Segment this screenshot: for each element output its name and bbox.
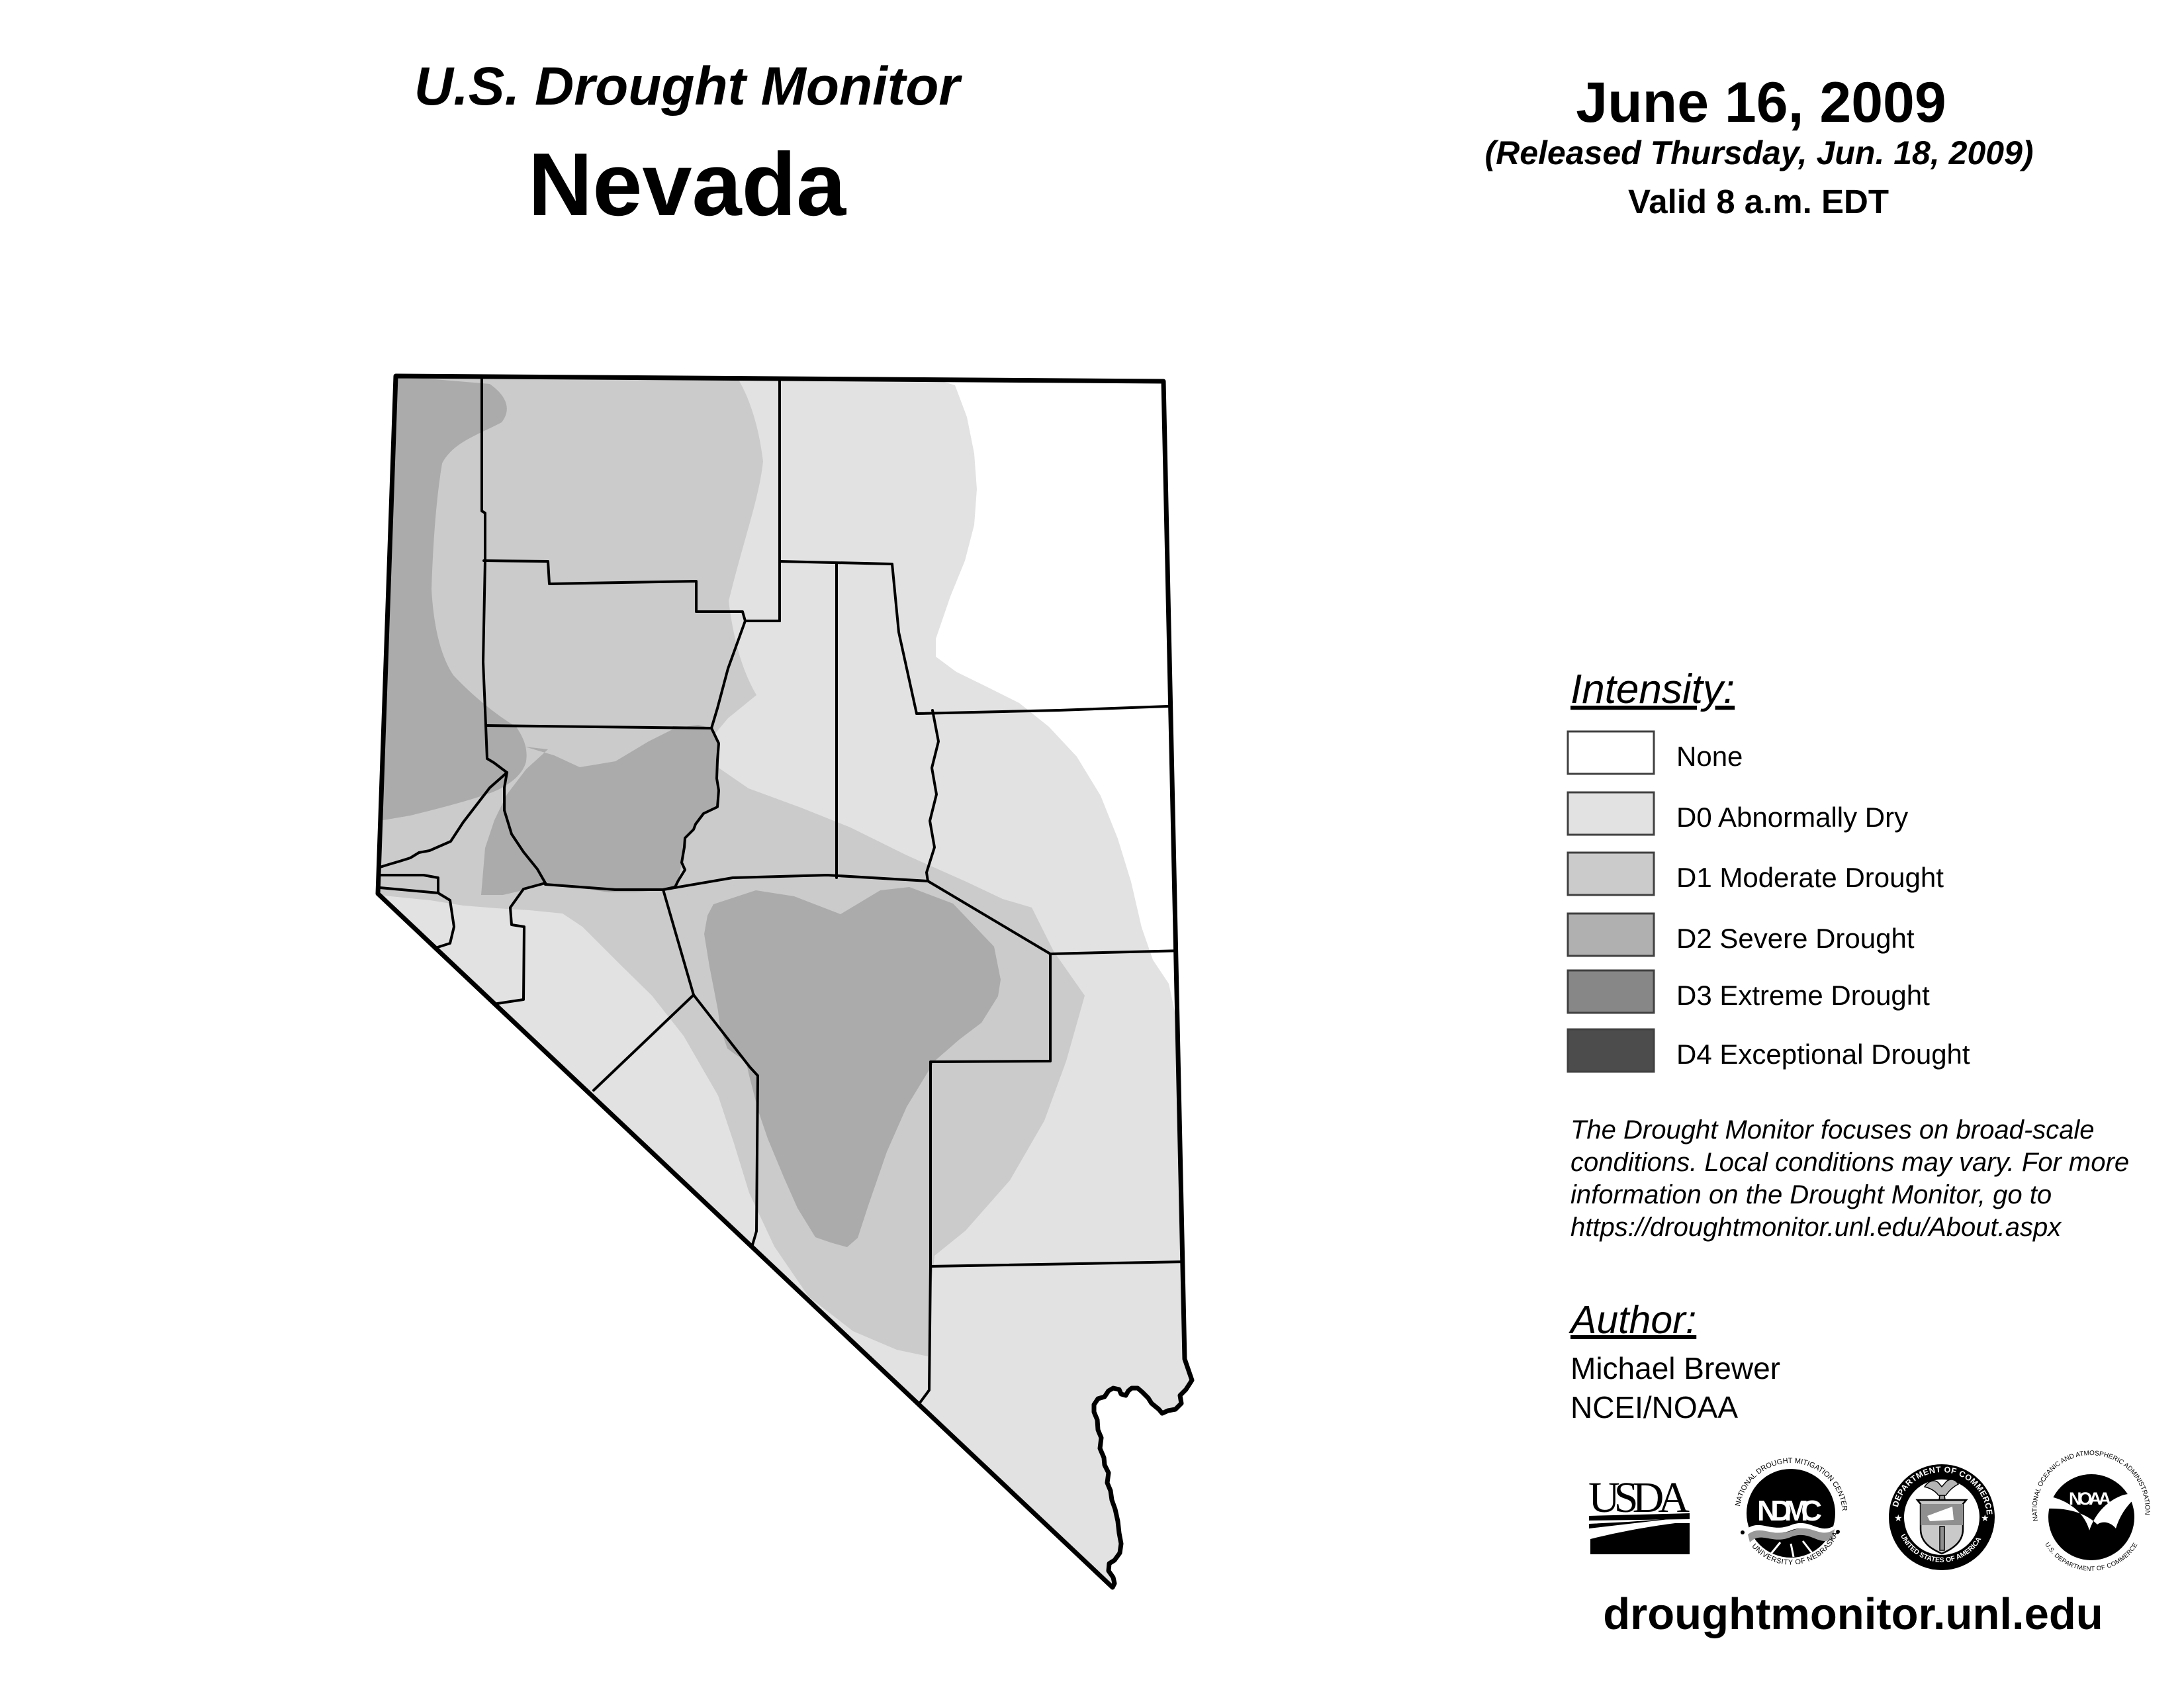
svg-text:D2 Severe Drought: D2 Severe Drought xyxy=(1676,923,1915,954)
svg-text:Michael Brewer: Michael Brewer xyxy=(1570,1351,1780,1385)
svg-text:droughtmonitor.unl.edu: droughtmonitor.unl.edu xyxy=(1603,1589,2103,1639)
svg-text:Author:: Author: xyxy=(1569,1298,1696,1342)
svg-text:★: ★ xyxy=(1894,1513,1903,1523)
svg-text:https://droughtmonitor.unl.edu: https://droughtmonitor.unl.edu/About.asp… xyxy=(1570,1213,2062,1242)
svg-text:NCEI/NOAA: NCEI/NOAA xyxy=(1570,1390,1738,1425)
svg-text:D0 Abnormally Dry: D0 Abnormally Dry xyxy=(1676,802,1908,833)
svg-text:D4 Exceptional Drought: D4 Exceptional Drought xyxy=(1676,1039,1970,1070)
svg-text:conditions. Local conditions m: conditions. Local conditions may vary. F… xyxy=(1570,1148,2129,1177)
svg-text:NDMC: NDMC xyxy=(1757,1495,1822,1527)
svg-text:The Drought Monitor focuses on: The Drought Monitor focuses on broad-sca… xyxy=(1570,1115,2095,1145)
svg-text:June 16, 2009: June 16, 2009 xyxy=(1576,71,1946,134)
svg-text:U.S. Drought Monitor: U.S. Drought Monitor xyxy=(414,56,962,117)
svg-text:(Released Thursday, Jun. 18, 2: (Released Thursday, Jun. 18, 2009) xyxy=(1484,134,2033,171)
svg-text:★: ★ xyxy=(1981,1513,1989,1523)
svg-text:information on the Drought Mon: information on the Drought Monitor, go t… xyxy=(1570,1180,2052,1209)
svg-text:D1 Moderate Drought: D1 Moderate Drought xyxy=(1676,862,1944,893)
svg-text:Nevada: Nevada xyxy=(528,134,846,234)
svg-text:NOAA: NOAA xyxy=(2069,1489,2111,1509)
svg-text:Intensity:: Intensity: xyxy=(1570,667,1735,712)
svg-text:None: None xyxy=(1676,741,1743,772)
svg-text:D3 Extreme Drought: D3 Extreme Drought xyxy=(1676,980,1930,1011)
svg-text:Valid 8 a.m. EDT: Valid 8 a.m. EDT xyxy=(1628,183,1889,220)
